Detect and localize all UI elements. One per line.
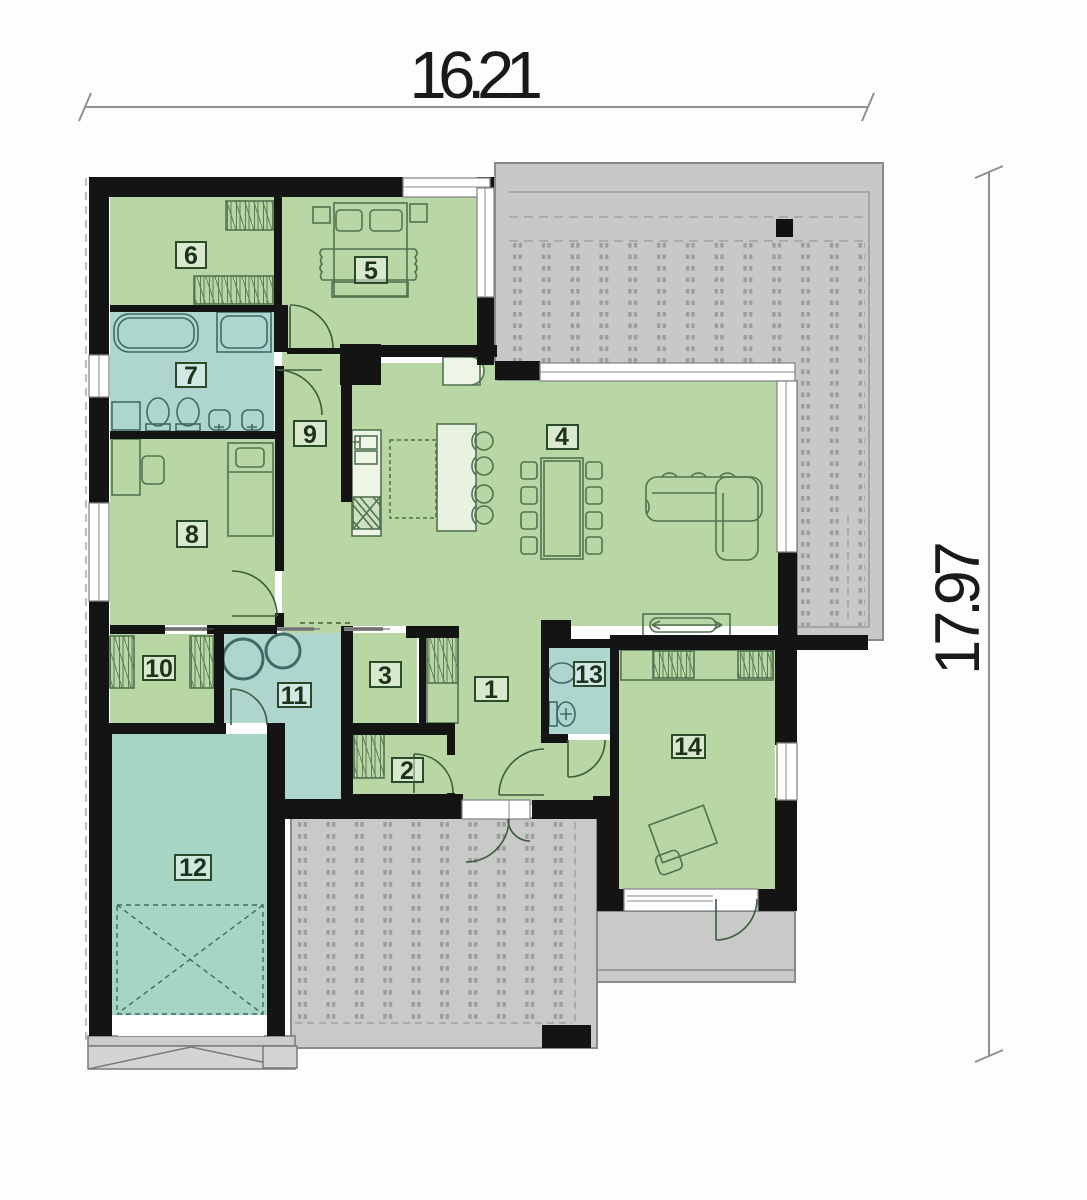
svg-text:5: 5 [364,257,378,285]
svg-text:6: 6 [184,242,198,270]
svg-text:9: 9 [303,421,317,449]
svg-text:7: 7 [184,362,198,390]
svg-text:14: 14 [674,733,702,761]
svg-text:4: 4 [555,423,569,451]
svg-text:12: 12 [179,854,207,882]
svg-text:13: 13 [575,661,603,689]
svg-text:16.21: 16.21 [409,38,539,113]
svg-text:3: 3 [378,662,392,690]
svg-text:11: 11 [281,682,308,710]
svg-text:8: 8 [185,521,199,549]
svg-text:10: 10 [145,655,173,683]
svg-text:2: 2 [400,757,414,785]
svg-text:17.97: 17.97 [923,544,993,675]
svg-text:1: 1 [484,676,498,704]
